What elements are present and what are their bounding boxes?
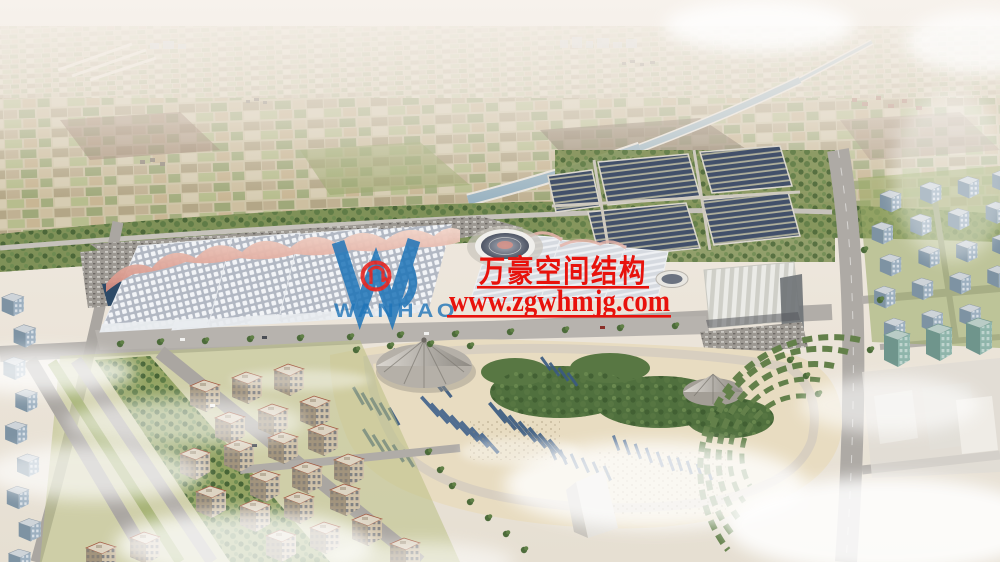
logo-wordmark: WANHAO — [334, 301, 458, 322]
scene-rendering: WANHAO 万豪空间结构 www.zgwhmjg.com — [0, 0, 1000, 562]
screenshot-root: WANHAO 万豪空间结构 www.zgwhmjg.com — [0, 0, 1000, 562]
url-underline — [447, 315, 671, 318]
watermark-website-url: www.zgwhmjg.com — [449, 283, 670, 318]
